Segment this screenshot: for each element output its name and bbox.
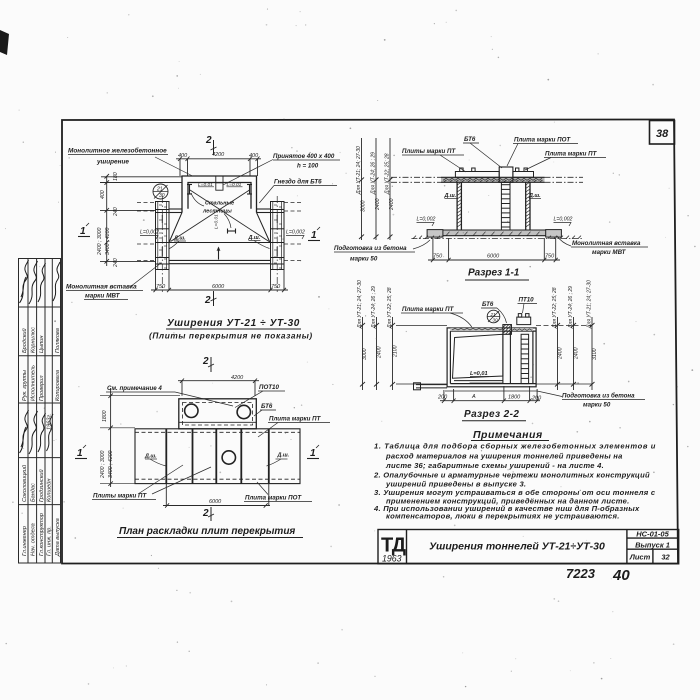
svg-text:400: 400	[178, 153, 188, 159]
svg-text:400: 400	[249, 153, 259, 159]
svg-text:Уширения тоннелей УТ-21÷УТ-30: Уширения тоннелей УТ-21÷УТ-30	[429, 541, 605, 553]
svg-text:3400 ; 4200: 3400 ; 4200	[108, 450, 114, 478]
svg-text:750: 750	[545, 254, 555, 260]
svg-text:L=0,002: L=0,002	[140, 230, 159, 236]
svg-text:БТ6: БТ6	[464, 136, 476, 143]
svg-text:Соколовицкий: Соколовицкий	[21, 465, 28, 502]
svg-text:Полякова: Полякова	[55, 328, 61, 353]
svg-text:Гл.конструктор: Гл.конструктор	[39, 513, 45, 556]
svg-text:2. Опалубочные и арматурные: 2. Опалубочные и арматурные чертежи моно…	[373, 471, 650, 480]
svg-text:Монолитная вставка: Монолитная вставка	[572, 240, 641, 247]
svg-text:32: 32	[661, 553, 670, 562]
svg-text:Примечания: Примечания	[473, 429, 543, 441]
svg-text:2: 2	[202, 356, 209, 367]
svg-text:2100: 2100	[393, 345, 399, 358]
svg-text:А: А	[471, 394, 476, 400]
svg-text:расход материалов на уширен: расход материалов на уширения тоннелей п…	[385, 452, 623, 461]
svg-text:30: 30	[493, 318, 499, 323]
svg-text:марки МВТ: марки МВТ	[85, 293, 121, 300]
svg-text:750: 750	[156, 284, 166, 290]
svg-text:План раскладки плит перекры: План раскладки плит перекрытия	[119, 526, 295, 537]
svg-text:Гл.инженер: Гл.инженер	[22, 526, 28, 556]
svg-text:2400: 2400	[558, 347, 564, 360]
svg-text:Плита марки ПОТ: Плита марки ПОТ	[245, 495, 302, 502]
svg-text:Монолитное железобетонное: Монолитное железобетонное	[68, 147, 167, 155]
svg-text:листе 36; габаритные схемы: листе 36; габаритные схемы уширений - на…	[385, 461, 604, 470]
svg-text:4200: 4200	[231, 375, 244, 381]
svg-text:Д.ш.: Д.ш.	[528, 193, 541, 199]
svg-text:компенсаторов, люки в перек: компенсаторов, люки в перекрытиях не уст…	[386, 512, 620, 521]
svg-text:Цыпин: Цыпин	[39, 336, 45, 353]
svg-text:2400 ; 3000: 2400 ; 3000	[97, 227, 103, 256]
svg-text:Гродзинский: Гродзинский	[38, 469, 45, 502]
svg-text:2400: 2400	[375, 198, 381, 211]
svg-text:Бандас: Бандас	[31, 483, 37, 502]
svg-text:ПТ10: ПТ10	[519, 297, 535, 304]
svg-text:Копировала: Копировала	[55, 370, 61, 401]
svg-text:750: 750	[433, 254, 443, 260]
svg-text:Для УТ-21; 24; 27-30: Для УТ-21; 24; 27-30	[587, 280, 593, 329]
svg-text:(Плиты перекрытия не показа: (Плиты перекрытия не показаны)	[149, 330, 313, 340]
svg-text:Разрез 1-1: Разрез 1-1	[468, 268, 520, 279]
svg-text:Для УТ-22; 25; 28: Для УТ-22; 25; 28	[552, 287, 558, 329]
svg-text:Принятое 400 х 400: Принятое 400 х 400	[273, 153, 335, 160]
svg-text:Д.ш.: Д.ш.	[277, 453, 290, 459]
svg-text:2: 2	[204, 295, 211, 306]
svg-text:Бродский: Бродский	[21, 328, 28, 353]
svg-text:Исполнитель: Исполнитель	[31, 365, 37, 401]
svg-text:Стальные: Стальные	[205, 201, 234, 207]
svg-text:200: 200	[531, 396, 542, 402]
svg-text:1963: 1963	[382, 554, 402, 564]
svg-text:Разрез 2-2: Разрез 2-2	[464, 409, 519, 420]
svg-text:1: 1	[311, 230, 317, 241]
svg-text:Монолитная вставка: Монолитная вставка	[66, 284, 137, 291]
svg-text:Для УТ-22; 25; 28: Для УТ-22; 25; 28	[385, 153, 391, 195]
svg-text:L=0,002: L=0,002	[286, 230, 305, 236]
svg-text:3000: 3000	[362, 348, 368, 360]
svg-text:3100: 3100	[592, 348, 598, 360]
svg-text:1800: 1800	[102, 410, 108, 422]
svg-text:Д.ш.: Д.ш.	[444, 193, 457, 199]
svg-text:Для УТ-21; 24; 27-30: Для УТ-21; 24; 27-30	[356, 146, 362, 195]
svg-text:3000: 3000	[361, 200, 367, 212]
svg-text:Гл. инж. пр.: Гл. инж. пр.	[47, 526, 53, 556]
svg-text:1800: 1800	[508, 395, 521, 401]
svg-text:6000: 6000	[487, 254, 500, 260]
svg-text:1. Таблица для подбора сбор: 1. Таблица для подбора сборных железобет…	[374, 442, 656, 451]
svg-text:1: 1	[310, 448, 316, 459]
svg-text:400: 400	[100, 190, 106, 199]
svg-text:L=0,01: L=0,01	[470, 371, 488, 377]
svg-text:30: 30	[159, 193, 165, 199]
svg-text:1: 1	[77, 448, 83, 459]
svg-text:21: 21	[490, 312, 497, 317]
svg-text:Для УТ-22; 25; 28: Для УТ-22; 25; 28	[387, 287, 393, 329]
svg-text:2400: 2400	[389, 198, 395, 211]
svg-text:2: 2	[205, 135, 212, 146]
svg-text:2400: 2400	[377, 346, 383, 359]
svg-text:марки 50: марки 50	[583, 402, 611, 409]
svg-text:h = 100: h = 100	[297, 163, 319, 170]
svg-text:6000: 6000	[209, 499, 222, 505]
svg-text:1: 1	[80, 226, 86, 237]
svg-text:НС-01-05: НС-01-05	[636, 530, 669, 539]
svg-text:200: 200	[437, 395, 448, 401]
svg-text:Корнилюс: Корнилюс	[31, 327, 37, 353]
svg-text:Нач. отдела: Нач. отдела	[31, 523, 37, 556]
svg-text:марки 50: марки 50	[350, 256, 378, 263]
svg-text:Плита марки ПТ: Плита марки ПТ	[269, 416, 322, 423]
svg-text:240: 240	[113, 207, 119, 217]
svg-text:Уширения УТ-21 ÷ УТ-30: Уширения УТ-21 ÷ УТ-30	[167, 318, 300, 329]
svg-text:Гнездо для БТ6: Гнездо для БТ6	[274, 179, 322, 186]
svg-text:См. примечание 4: См. примечание 4	[107, 385, 162, 392]
svg-text:Копшейн: Копшейн	[46, 479, 53, 502]
svg-text:Плиты марки ПТ: Плиты марки ПТ	[402, 148, 456, 155]
svg-text:L=0.01: L=0.01	[214, 214, 220, 229]
svg-text:Подготовка из бетона: Подготовка из бетона	[562, 393, 635, 400]
svg-text:Д.ш.: Д.ш.	[248, 235, 261, 241]
svg-text:Лист: Лист	[629, 553, 651, 562]
svg-text:Для УТ-24; 26 ; 29: Для УТ-24; 26 ; 29	[371, 152, 377, 195]
svg-text:уширение: уширение	[96, 159, 129, 166]
svg-text:750: 750	[271, 284, 281, 290]
svg-text:180: 180	[113, 172, 119, 181]
svg-text:Рук. группы: Рук. группы	[22, 370, 28, 401]
svg-text:2: 2	[202, 508, 209, 519]
svg-text:38: 38	[656, 128, 669, 140]
svg-text:2400 ; 3000: 2400 ; 3000	[100, 450, 106, 479]
svg-text:21: 21	[156, 187, 163, 193]
svg-text:Подготовка из бетона: Подготовка из бетона	[334, 245, 407, 252]
svg-text:6000: 6000	[212, 284, 225, 290]
svg-text:Д.ш.: Д.ш.	[144, 454, 157, 460]
svg-text:Выпуск 1: Выпуск 1	[635, 541, 670, 550]
svg-text:Для УТ-24; 26 ; 29: Для УТ-24; 26 ; 29	[568, 286, 574, 329]
svg-text:Для УТ-24; 26 ; 29: Для УТ-24; 26 ; 29	[371, 286, 377, 329]
svg-text:Плита марки ПОТ: Плита марки ПОТ	[514, 137, 571, 144]
svg-text:БТ6: БТ6	[261, 403, 273, 410]
svg-text:L=0,002: L=0,002	[554, 217, 573, 223]
svg-text:L=0,002: L=0,002	[417, 217, 436, 223]
svg-text:40: 40	[612, 567, 630, 584]
svg-text:марки МВТ: марки МВТ	[592, 249, 627, 256]
svg-text:лестницы: лестницы	[202, 209, 232, 215]
svg-text:7223: 7223	[566, 566, 596, 581]
svg-text:ПОТ10: ПОТ10	[259, 384, 279, 391]
svg-text:3400 ; 4200: 3400 ; 4200	[105, 227, 111, 255]
svg-text:Дата выпуска: Дата выпуска	[55, 518, 61, 557]
svg-text:БТ6: БТ6	[482, 301, 494, 308]
svg-text:240: 240	[113, 258, 119, 268]
svg-text:2400: 2400	[574, 347, 580, 360]
svg-text:Плита марки ПТ: Плита марки ПТ	[545, 151, 598, 158]
svg-text:Плита марки ПТ: Плита марки ПТ	[402, 306, 455, 313]
svg-text:Д.ш.: Д.ш.	[173, 236, 186, 242]
svg-text:Для УТ-21; 24; 27-30: Для УТ-21; 24; 27-30	[357, 280, 363, 329]
svg-text:Проверил: Проверил	[39, 375, 45, 401]
